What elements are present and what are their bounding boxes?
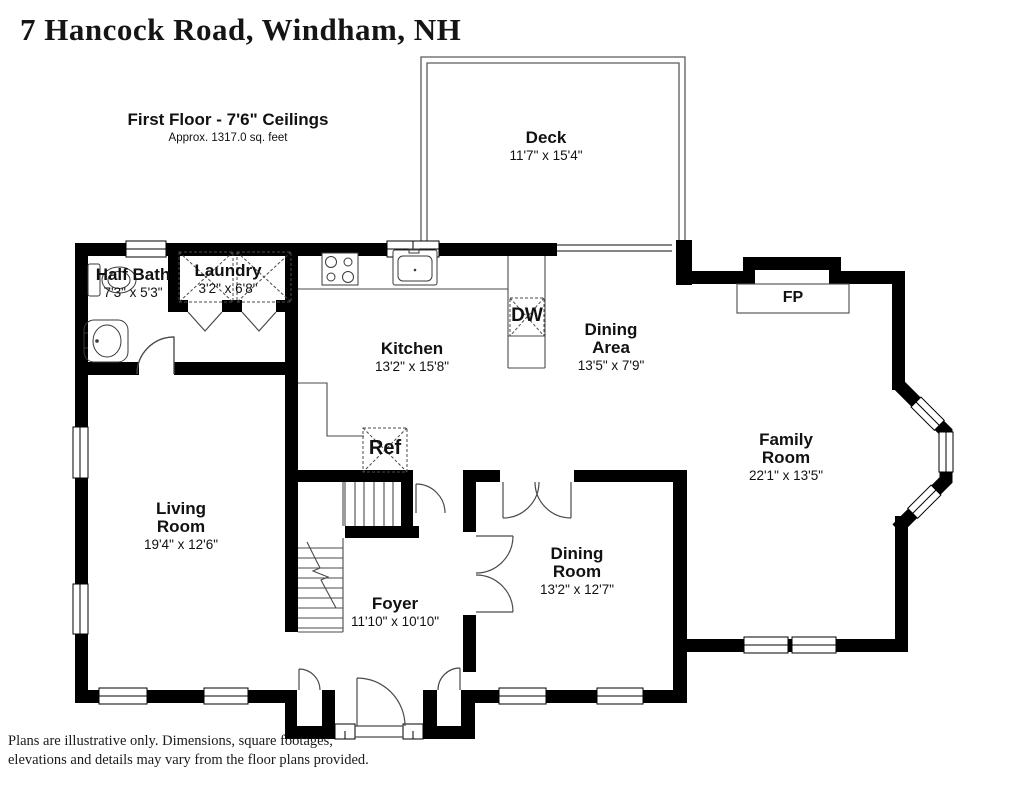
- kitchen-sink: [393, 249, 437, 285]
- disclaimer: Plans are illustrative only. Dimensions,…: [8, 732, 369, 770]
- room-label-deck: Deck 11'7" x 15'4": [491, 129, 601, 163]
- bay-windows: [908, 397, 953, 518]
- room-label-dining-area: Dining Area 13'5" x 7'9": [571, 321, 651, 373]
- room-label-half-bath: Half Bath 7'3" x 5'3": [94, 266, 172, 300]
- dishwasher-label: DW: [511, 305, 543, 327]
- room-label-laundry: Laundry 3'2" x 6'8": [168, 262, 288, 296]
- room-label-dining-room: Dining Room 13'2" x 12'7": [532, 545, 622, 597]
- refrigerator-label: Ref: [369, 437, 401, 460]
- disclaimer-line-1: Plans are illustrative only. Dimensions,…: [8, 732, 369, 751]
- disclaimer-line-2: elevations and details may vary from the…: [8, 751, 369, 770]
- floor-header: First Floor - 7'6" Ceilings Approx. 1317…: [113, 110, 343, 144]
- floor-area: Approx. 1317.0 sq. feet: [113, 132, 343, 144]
- sliding-door: [557, 245, 672, 251]
- room-label-kitchen: Kitchen 13'2" x 15'8": [352, 340, 472, 374]
- windows: [73, 241, 836, 739]
- room-label-family-room: Family Room 22'1" x 13'5": [741, 431, 831, 483]
- stove: [322, 253, 358, 285]
- floorplan-page: 7 Hancock Road, Windham, NH First Floor …: [0, 0, 1024, 790]
- floor-title: First Floor - 7'6" Ceilings: [113, 110, 343, 130]
- page-title: 7 Hancock Road, Windham, NH: [20, 12, 461, 48]
- room-label-foyer: Foyer 11'10" x 10'10": [330, 595, 460, 629]
- bathroom-sink: [84, 320, 128, 362]
- fireplace-label: FP: [783, 289, 803, 307]
- room-label-living-room: Living Room 19'4" x 12'6": [136, 500, 226, 552]
- walls: [75, 240, 908, 739]
